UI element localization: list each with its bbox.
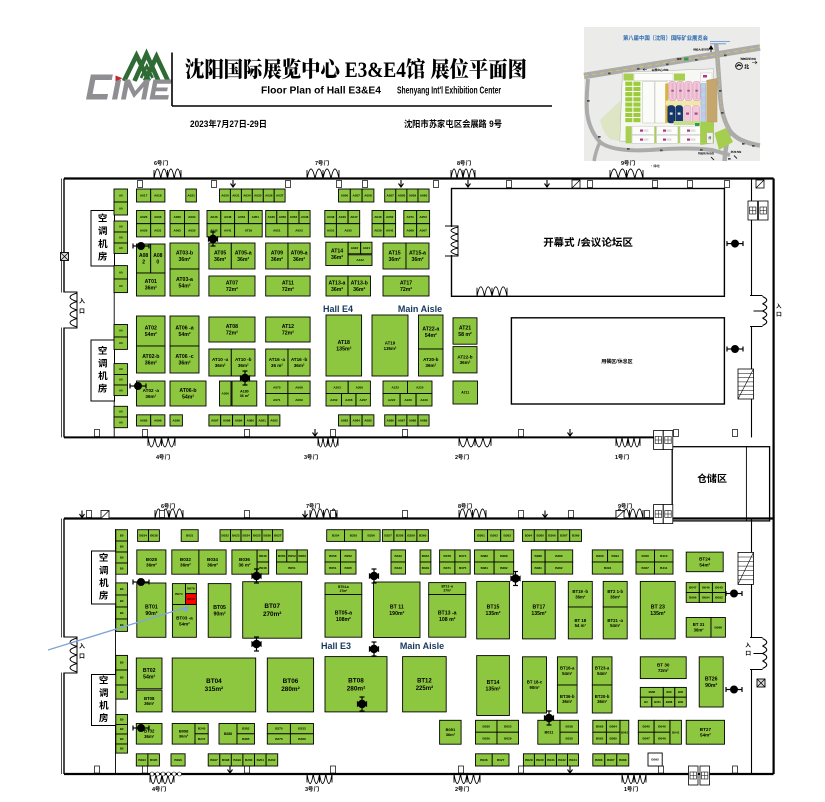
svg-text:B048: B048 — [259, 565, 267, 570]
svg-text:B046: B046 — [658, 723, 666, 728]
svg-text:A040: A040 — [338, 214, 346, 219]
svg-text:A321: A321 — [363, 245, 371, 250]
svg-text:A0: A0 — [119, 410, 123, 414]
svg-text:A082: A082 — [270, 418, 278, 423]
svg-text:B358: B358 — [396, 533, 404, 538]
svg-text:B045: B045 — [642, 723, 650, 728]
svg-text:B092: B092 — [715, 595, 723, 600]
svg-text:B095: B095 — [150, 757, 158, 762]
svg-text:A052: A052 — [386, 214, 394, 219]
svg-text:36m²: 36m² — [411, 256, 423, 263]
svg-text:A046: A046 — [267, 214, 275, 219]
svg-text:B098: B098 — [222, 757, 230, 762]
svg-text:36m²: 36m² — [597, 699, 608, 705]
svg-text:房: 房 — [98, 588, 109, 602]
svg-text:36m²: 36m² — [215, 363, 226, 369]
svg-text:2: 2 — [142, 258, 145, 265]
svg-text:A058: A058 — [398, 193, 406, 198]
svg-text:B046: B046 — [702, 585, 710, 590]
svg-text:90m²: 90m² — [705, 682, 717, 689]
svg-text:B381: B381 — [481, 565, 489, 570]
svg-text:B025: B025 — [504, 723, 512, 728]
svg-text:36m²: 36m² — [237, 256, 249, 263]
svg-text:房: 房 — [97, 381, 108, 395]
svg-text:A083: A083 — [341, 418, 349, 423]
svg-text:A048: A048 — [224, 214, 232, 219]
svg-text:36m²: 36m² — [610, 594, 621, 600]
svg-text:135m²: 135m² — [384, 346, 397, 352]
svg-text:B359: B359 — [407, 533, 415, 538]
svg-text:6号门: 6号门 — [154, 159, 169, 167]
svg-text:36m²: 36m² — [145, 394, 156, 400]
svg-text:B352: B352 — [422, 553, 430, 558]
svg-text:A086: A086 — [386, 418, 394, 423]
svg-text:A034: A034 — [188, 214, 196, 219]
svg-text:B047: B047 — [642, 735, 650, 740]
svg-text:B036: B036 — [480, 757, 488, 762]
svg-text:190m²: 190m² — [389, 610, 404, 617]
svg-text:B011: B011 — [544, 731, 553, 736]
svg-text:A046: A046 — [210, 214, 218, 219]
svg-text:36m²: 36m² — [353, 286, 365, 293]
svg-text:A051: A051 — [252, 214, 260, 219]
svg-text:B305: B305 — [344, 565, 352, 570]
svg-text:6号门: 6号门 — [161, 502, 176, 510]
svg-text:27m²: 27m² — [340, 588, 347, 593]
svg-text:B074: B074 — [175, 591, 183, 596]
svg-text:A035: A035 — [254, 193, 262, 198]
svg-text:Shenyang Int'l Exhibition Cent: Shenyang Int'l Exhibition Center — [397, 86, 501, 97]
svg-text:Hall E4: Hall E4 — [323, 304, 353, 314]
svg-text:A060: A060 — [173, 214, 181, 219]
svg-text:36m²: 36m² — [271, 256, 283, 263]
svg-text:口: 口 — [79, 306, 85, 315]
svg-text:会展中心方向: 会展中心方向 — [651, 68, 669, 72]
svg-text:B343: B343 — [394, 565, 402, 570]
svg-text:B015: B015 — [565, 735, 573, 740]
svg-text:B086: B086 — [595, 757, 603, 762]
svg-text:B362: B362 — [490, 533, 498, 538]
svg-text:入: 入 — [745, 641, 751, 649]
svg-text:B023: B023 — [232, 533, 240, 538]
svg-text:36m²: 36m² — [179, 734, 189, 740]
svg-text:36m²: 36m² — [144, 701, 155, 707]
svg-text:A030: A030 — [221, 193, 229, 198]
svg-text:Hall E3: Hall E3 — [321, 641, 351, 651]
svg-text:B381: B381 — [534, 565, 542, 570]
svg-text:B018: B018 — [565, 723, 573, 728]
svg-text:B0: B0 — [120, 587, 124, 591]
svg-text:54m²: 54m² — [610, 623, 621, 629]
svg-text:36m²: 36m² — [180, 563, 191, 569]
svg-text:A051: A051 — [273, 227, 281, 232]
svg-text:B386: B386 — [555, 553, 563, 558]
svg-text:B360: B360 — [419, 533, 427, 538]
svg-text:·绿地: ·绿地 — [650, 163, 660, 168]
svg-text:2023年7月27日-29日: 2023年7月27日-29日 — [190, 117, 267, 130]
svg-text:B034: B034 — [139, 533, 147, 538]
svg-text:A068: A068 — [295, 384, 303, 389]
svg-text:B247: B247 — [198, 736, 206, 741]
svg-text:36m²: 36m² — [145, 360, 157, 367]
svg-text:B087: B087 — [607, 757, 615, 762]
svg-text:B364: B364 — [525, 533, 533, 538]
svg-text:135m²: 135m² — [650, 610, 665, 617]
svg-text:54m²: 54m² — [597, 671, 608, 677]
svg-text:B0: B0 — [120, 747, 124, 751]
svg-text:A306: A306 — [221, 391, 229, 396]
svg-text:B0: B0 — [120, 690, 124, 694]
svg-text:第八届中国（沈阳）国际矿业展览会: 第八届中国（沈阳）国际矿业展览会 — [623, 33, 708, 42]
svg-text:A208: A208 — [345, 397, 353, 402]
svg-text:72m²: 72m² — [226, 330, 238, 337]
svg-text:7号门: 7号门 — [315, 159, 330, 167]
svg-text:B095: B095 — [651, 757, 659, 762]
svg-text:B0: B0 — [120, 533, 124, 537]
svg-text:135m²: 135m² — [531, 610, 546, 617]
svg-text:B049: B049 — [658, 735, 666, 740]
svg-text:B378: B378 — [443, 553, 451, 558]
svg-text:A037: A037 — [276, 193, 284, 198]
svg-text:A036: A036 — [154, 214, 162, 219]
svg-text:B097: B097 — [210, 757, 218, 762]
svg-text:B382: B382 — [500, 565, 508, 570]
svg-text:B0: B0 — [120, 737, 124, 741]
svg-text:A0: A0 — [119, 236, 123, 240]
svg-text:54m²: 54m² — [178, 331, 190, 338]
svg-text:B088: B088 — [649, 690, 656, 694]
svg-text:B356: B356 — [367, 533, 375, 538]
svg-text:B289: B289 — [298, 736, 306, 741]
svg-text:B051: B051 — [288, 565, 296, 570]
svg-text:A070: A070 — [273, 384, 281, 389]
svg-text:36m²: 36m² — [238, 363, 249, 369]
svg-text:A047: A047 — [350, 214, 358, 219]
svg-text:36m²: 36m² — [214, 256, 226, 263]
svg-text:B063: B063 — [596, 723, 604, 728]
svg-text:北: 北 — [743, 64, 749, 71]
svg-text:A296: A296 — [172, 418, 180, 423]
svg-text:用餐区/休息区: 用餐区/休息区 — [601, 358, 632, 365]
svg-text:B374: B374 — [459, 553, 467, 558]
svg-text:36 m²: 36 m² — [271, 363, 283, 369]
svg-text:A057: A057 — [352, 193, 360, 198]
svg-text:B053: B053 — [298, 553, 306, 558]
svg-text:A087: A087 — [398, 418, 406, 423]
svg-text:B052: B052 — [288, 553, 296, 558]
svg-text:36m²: 36m² — [293, 256, 305, 263]
svg-text:135m²: 135m² — [336, 346, 351, 353]
svg-text:B407: B407 — [641, 565, 649, 570]
svg-text:36m²: 36m² — [446, 732, 456, 738]
svg-text:沈阳绕城方向: 沈阳绕城方向 — [740, 57, 756, 61]
svg-text:B0: B0 — [120, 545, 124, 549]
svg-text:世纪大道方向: 世纪大道方向 — [693, 48, 709, 52]
svg-text:A088: A088 — [409, 418, 417, 423]
svg-text:54m²: 54m² — [179, 621, 190, 627]
svg-text:B391: B391 — [604, 565, 612, 570]
svg-text:口: 口 — [745, 649, 751, 657]
svg-text:A031: A031 — [327, 227, 335, 232]
svg-text:A039: A039 — [374, 227, 382, 232]
svg-text:B022: B022 — [221, 533, 229, 538]
svg-text:58 m²: 58 m² — [458, 331, 472, 338]
svg-text:A081: A081 — [258, 418, 266, 423]
svg-text:A058: A058 — [364, 193, 372, 198]
svg-text:0: 0 — [156, 258, 159, 265]
svg-text:B062: B062 — [596, 735, 604, 740]
svg-text:地铁: 地铁 — [675, 57, 682, 61]
svg-text:B046: B046 — [259, 553, 267, 558]
svg-text:B285: B285 — [242, 736, 250, 741]
svg-text:入: 入 — [776, 302, 782, 310]
svg-text:B380: B380 — [481, 553, 489, 558]
svg-text:A209: A209 — [356, 384, 364, 389]
svg-text:54m²: 54m² — [425, 332, 437, 339]
svg-text:B411: B411 — [660, 565, 668, 570]
svg-text:B024: B024 — [242, 533, 250, 538]
svg-text:2号门: 2号门 — [455, 785, 470, 793]
svg-text:B233: B233 — [298, 726, 306, 731]
svg-text:135m²: 135m² — [486, 686, 501, 693]
svg-text:2号门: 2号门 — [455, 453, 470, 461]
svg-text:A036: A036 — [265, 193, 273, 198]
svg-text:A0: A0 — [119, 225, 123, 229]
svg-text:A0: A0 — [119, 420, 123, 424]
svg-text:B0: B0 — [120, 676, 124, 680]
svg-text:8号门: 8号门 — [458, 502, 473, 510]
svg-text:A0: A0 — [119, 388, 123, 392]
svg-text:桃仙机场方向: 桃仙机场方向 — [697, 152, 714, 156]
svg-text:A021: A021 — [187, 193, 195, 198]
svg-text:A026: A026 — [140, 214, 148, 219]
svg-text:A071: A071 — [406, 214, 414, 219]
svg-text:B041: B041 — [672, 730, 680, 734]
svg-text:B034: B034 — [569, 757, 577, 762]
svg-text:36m²: 36m² — [294, 363, 305, 369]
svg-text:270m²: 270m² — [263, 609, 281, 618]
svg-text:B047: B047 — [689, 585, 697, 590]
svg-text:B050: B050 — [278, 553, 286, 558]
svg-text:B029: B029 — [504, 735, 512, 740]
svg-text:A097: A097 — [211, 418, 219, 423]
svg-text:A099: A099 — [235, 418, 243, 423]
svg-text:B202: B202 — [268, 757, 276, 762]
svg-text:36m²: 36m² — [145, 285, 157, 292]
svg-text:A211: A211 — [461, 390, 469, 395]
svg-text:入: 入 — [79, 641, 85, 650]
svg-text:B094: B094 — [702, 595, 710, 600]
svg-text:B026: B026 — [482, 735, 490, 740]
svg-text:B088: B088 — [666, 700, 673, 704]
svg-text:B058: B058 — [329, 553, 337, 558]
svg-text:A029: A029 — [140, 227, 148, 232]
svg-text:72m²: 72m² — [282, 286, 294, 293]
svg-text:A071: A071 — [273, 397, 281, 402]
svg-text:A059: A059 — [409, 193, 417, 198]
svg-text:36m²: 36m² — [331, 286, 343, 293]
svg-text:36m²: 36m² — [562, 699, 573, 705]
svg-text:315m²: 315m² — [205, 684, 223, 693]
svg-text:A041: A041 — [386, 227, 394, 232]
svg-text:B0: B0 — [120, 661, 124, 665]
svg-text:B0: B0 — [120, 556, 124, 560]
svg-text:B021: B021 — [186, 533, 194, 538]
svg-text:36m²: 36m² — [146, 563, 157, 569]
svg-text:B010: B010 — [187, 596, 195, 601]
svg-text:B390: B390 — [596, 553, 604, 558]
svg-text:AT39: AT39 — [245, 227, 253, 232]
svg-text:B410: B410 — [660, 553, 668, 558]
svg-text:B038: B038 — [150, 533, 158, 538]
svg-text:口: 口 — [79, 651, 85, 660]
svg-text:入: 入 — [79, 296, 85, 305]
svg-text:36m²: 36m² — [694, 628, 705, 634]
svg-text:A063: A063 — [173, 227, 181, 232]
svg-text:A031: A031 — [154, 227, 162, 232]
svg-text:B375: B375 — [459, 565, 467, 570]
svg-text:B027: B027 — [274, 533, 282, 538]
svg-text:280m²: 280m² — [347, 684, 365, 693]
svg-text:A223: A223 — [391, 384, 399, 389]
svg-text:72m²: 72m² — [282, 330, 294, 337]
svg-text:B0: B0 — [644, 700, 648, 704]
svg-text:A0: A0 — [119, 194, 123, 198]
svg-text:3号门: 3号门 — [304, 453, 319, 461]
svg-text:B09: B09 — [667, 690, 672, 694]
svg-text:90m²: 90m² — [214, 611, 226, 618]
svg-text:Main Aisle: Main Aisle — [398, 304, 442, 314]
svg-text:B09: B09 — [678, 700, 683, 704]
svg-text:B275: B275 — [275, 726, 283, 731]
svg-text:仓储区: 仓储区 — [697, 470, 727, 485]
svg-text:B045: B045 — [715, 585, 723, 590]
svg-text:225m²: 225m² — [416, 683, 433, 692]
svg-text:A0: A0 — [119, 378, 123, 382]
svg-text:36m²: 36m² — [144, 734, 155, 740]
svg-text:口: 口 — [776, 310, 782, 318]
svg-text:B027: B027 — [497, 757, 505, 762]
svg-text:3号门: 3号门 — [305, 785, 320, 793]
svg-text:A323: A323 — [351, 245, 359, 250]
svg-text:B282: B282 — [242, 726, 250, 731]
svg-text:9号门: 9号门 — [618, 502, 633, 510]
svg-text:36m²: 36m² — [178, 256, 190, 263]
svg-text:A0: A0 — [119, 246, 123, 250]
svg-text:B342: B342 — [394, 553, 402, 558]
svg-text:B051: B051 — [654, 700, 661, 704]
svg-text:B394: B394 — [611, 553, 619, 558]
svg-text:36 m²: 36 m² — [240, 394, 250, 399]
svg-text:沈阳市苏家屯区会展路 9号: 沈阳市苏家屯区会展路 9号 — [404, 117, 502, 130]
svg-text:A095: A095 — [140, 418, 148, 423]
svg-text:B386: B386 — [500, 553, 508, 558]
svg-text:36m²: 36m² — [425, 363, 436, 369]
svg-text:B025: B025 — [253, 533, 261, 538]
svg-text:A0: A0 — [119, 341, 123, 345]
svg-text:B357: B357 — [384, 533, 392, 538]
svg-text:27m²: 27m² — [443, 588, 450, 593]
svg-text:1号门: 1号门 — [624, 785, 639, 793]
svg-text:B065: B065 — [609, 735, 617, 740]
svg-text:A053: A053 — [419, 214, 427, 219]
svg-text:72m²: 72m² — [400, 286, 412, 293]
svg-text:B098: B098 — [714, 624, 722, 629]
svg-text:B365: B365 — [536, 533, 544, 538]
svg-text:A226: A226 — [404, 397, 412, 402]
svg-text:108 m²: 108 m² — [439, 616, 456, 623]
svg-text:B032: B032 — [558, 757, 566, 762]
svg-text:4号门: 4号门 — [152, 785, 167, 793]
svg-text:A207: A207 — [359, 397, 367, 402]
svg-text:Main Aisle: Main Aisle — [400, 641, 444, 651]
svg-text:B064: B064 — [609, 723, 617, 728]
svg-text:B349: B349 — [422, 565, 430, 570]
svg-text:B088: B088 — [619, 757, 627, 762]
svg-text:B051: B051 — [329, 565, 337, 570]
svg-text:开幕式 /会议论坛区: 开幕式 /会议论坛区 — [543, 235, 633, 250]
svg-text:A056: A056 — [341, 193, 349, 198]
svg-text:A017: A017 — [140, 193, 148, 198]
svg-text:A053: A053 — [295, 227, 303, 232]
svg-text:8号门: 8号门 — [457, 159, 472, 167]
svg-text:B355: B355 — [350, 533, 358, 538]
svg-text:36m²: 36m² — [575, 594, 586, 600]
svg-text:A035: A035 — [344, 227, 352, 232]
svg-text:A034: A034 — [243, 193, 251, 198]
svg-text:36m²: 36m² — [331, 254, 343, 261]
svg-text:90m²: 90m² — [529, 685, 540, 691]
svg-text:A096: A096 — [154, 418, 162, 423]
svg-text:108m²: 108m² — [336, 616, 351, 623]
svg-text:A057: A057 — [386, 193, 394, 198]
svg-text:B354: B354 — [332, 533, 340, 538]
svg-text:B200: B200 — [245, 757, 253, 762]
svg-text:B199: B199 — [233, 757, 241, 762]
svg-text:A046: A046 — [374, 214, 382, 219]
svg-text:36m²: 36m² — [460, 360, 471, 366]
svg-text:72m²: 72m² — [226, 286, 238, 293]
svg-text:A018: A018 — [154, 193, 162, 198]
svg-text:A031: A031 — [232, 193, 240, 198]
svg-text:B366: B366 — [548, 533, 556, 538]
svg-text:B031: B031 — [547, 757, 555, 762]
svg-text:36m²: 36m² — [388, 256, 400, 263]
svg-text:B245: B245 — [198, 726, 206, 731]
svg-text:房: 房 — [98, 710, 109, 724]
svg-text:72m²: 72m² — [658, 668, 669, 674]
svg-text:54m²: 54m² — [143, 674, 155, 681]
svg-text:A041: A041 — [224, 227, 232, 232]
svg-text:54 m²: 54 m² — [575, 623, 587, 629]
svg-text:A069: A069 — [295, 397, 303, 402]
svg-text:A202: A202 — [330, 397, 338, 402]
svg-text:A0: A0 — [119, 270, 123, 274]
svg-text:A048: A048 — [327, 214, 335, 219]
svg-text:A085: A085 — [364, 418, 372, 423]
svg-text:4号门: 4号门 — [156, 453, 171, 461]
svg-text:B371: B371 — [443, 565, 451, 570]
svg-text:停: 停 — [707, 136, 711, 140]
svg-text:B043: B043 — [621, 730, 629, 734]
svg-text:A050: A050 — [279, 214, 287, 219]
svg-text:A0: A0 — [119, 284, 123, 288]
svg-text:B029: B029 — [525, 757, 533, 762]
svg-text:A048: A048 — [301, 214, 309, 219]
svg-text:B0: B0 — [120, 727, 124, 731]
svg-text:7号门: 7号门 — [306, 502, 321, 510]
svg-text:B0: B0 — [120, 567, 124, 571]
